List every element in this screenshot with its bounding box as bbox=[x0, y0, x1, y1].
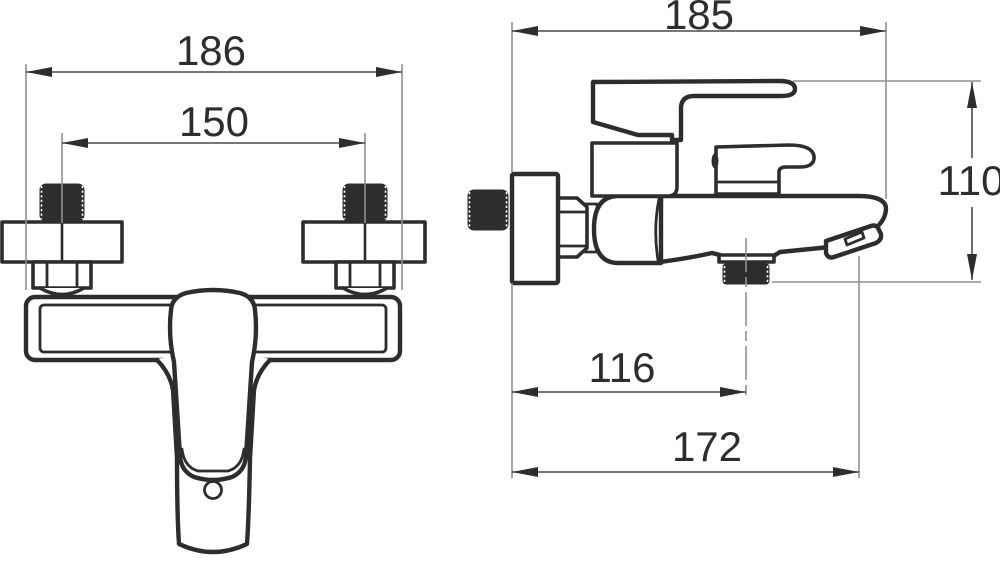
arrowhead-down bbox=[967, 254, 977, 280]
dim-label-150: 150 bbox=[179, 98, 249, 145]
side-handle-grip bbox=[716, 145, 814, 194]
cartridge-housing bbox=[592, 143, 677, 196]
front-dim-150: 150 bbox=[62, 98, 365, 223]
right-union-dome bbox=[343, 288, 387, 295]
side-nut bbox=[558, 198, 587, 257]
side-knurled-screw bbox=[468, 190, 508, 230]
arrowhead-right bbox=[720, 387, 746, 397]
front-view: 186 150 bbox=[2, 27, 425, 552]
left-union-dome bbox=[40, 288, 84, 295]
side-dim-185: 185 bbox=[512, 0, 886, 199]
front-right-connection bbox=[303, 184, 425, 295]
arrowhead-right bbox=[339, 138, 365, 148]
arrowhead-up bbox=[967, 82, 977, 108]
arrowhead-right bbox=[860, 26, 886, 36]
technical-drawing-canvas: 186 150 bbox=[0, 0, 1000, 563]
dim-label-186: 186 bbox=[176, 27, 246, 74]
grip-pivot-mark bbox=[712, 154, 718, 168]
left-nut bbox=[33, 262, 91, 288]
arrowhead-left bbox=[26, 67, 52, 77]
arrowhead-right bbox=[376, 67, 402, 77]
drawing-svg: 186 150 bbox=[0, 0, 1000, 563]
wall-plate bbox=[512, 174, 558, 283]
body-end-cap bbox=[594, 196, 661, 263]
side-handle-lever bbox=[593, 81, 795, 140]
arrowhead-left bbox=[512, 467, 538, 477]
right-nut bbox=[336, 262, 394, 288]
arrowhead-left bbox=[512, 387, 538, 397]
dim-label-116: 116 bbox=[589, 344, 656, 391]
arrowhead-left bbox=[512, 26, 538, 36]
arrowhead-left bbox=[62, 138, 88, 148]
side-dim-172: 172 bbox=[512, 256, 859, 478]
dim-label-172: 172 bbox=[672, 423, 742, 470]
side-view: 185 110 116 172 bbox=[468, 0, 1000, 478]
dim-label-110: 110 bbox=[938, 157, 1000, 204]
dim-label-185: 185 bbox=[664, 0, 734, 38]
arrowhead-right bbox=[833, 467, 859, 477]
